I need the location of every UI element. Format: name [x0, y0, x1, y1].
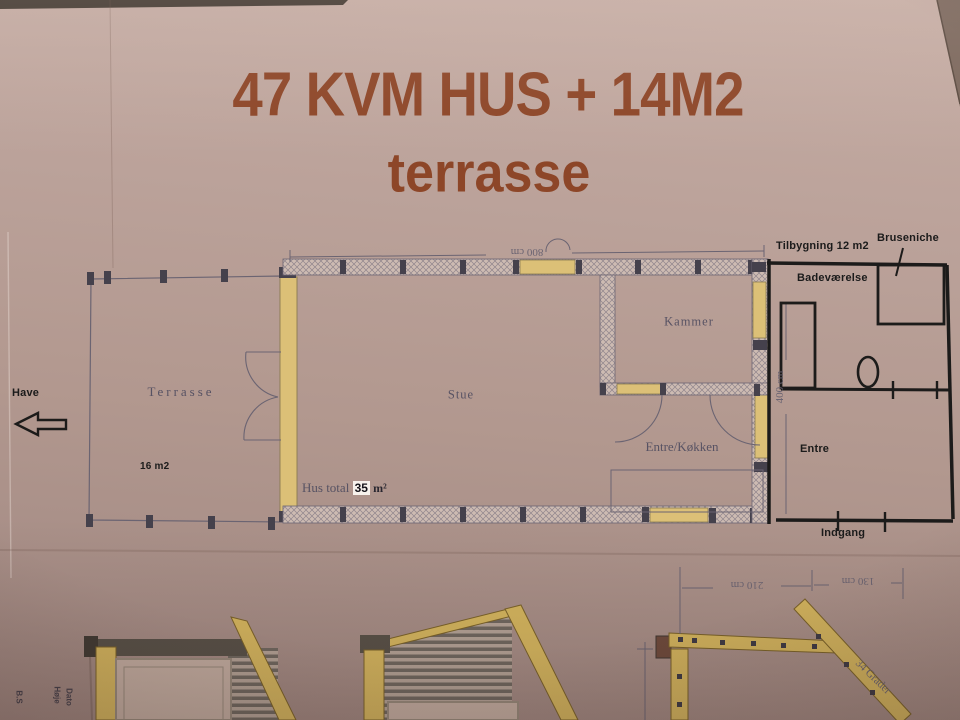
hus-total-value: 35	[353, 481, 370, 495]
addition-outline	[767, 248, 953, 532]
terrasse-room-label: Terrasse	[147, 384, 214, 400]
badevaerelse-label: Badeværelse	[797, 272, 868, 284]
dimension-400cm: 400 cm	[774, 371, 786, 404]
hus-total-prefix: Hus total	[302, 480, 349, 495]
margin-note-3: B.S	[15, 690, 24, 703]
dimension-130cm: 130 cm	[842, 575, 875, 587]
entre-label: Entre	[800, 443, 829, 455]
page-title-line1: 47 KVM HUS + 14M2	[232, 60, 743, 131]
dimension-800cm: 800 cm	[511, 246, 544, 258]
margin-note-2: Dato	[65, 688, 74, 706]
door-swing-arcs	[244, 352, 760, 445]
entre-koekken-room-label: Entre/Køkken	[646, 439, 719, 455]
hus-total-label: Hus total 35 m²	[302, 480, 387, 496]
margin-note-1: Høje	[53, 686, 62, 703]
page-title-line2: terrasse	[388, 140, 591, 205]
garden-direction-arrow-icon	[16, 413, 66, 435]
dimension-210cm: 210 cm	[731, 579, 764, 591]
stue-room-label: Stue	[448, 388, 474, 403]
elevation-drawing-middle	[360, 605, 578, 720]
tilbygning-label: Tilbygning 12 m2	[776, 240, 869, 252]
terrasse-area-label: 16 m2	[140, 461, 169, 472]
shower-niche	[878, 265, 944, 324]
dimension-lines	[290, 239, 786, 514]
indgang-label: Indgang	[821, 527, 865, 539]
floor-plan-photo: 47 KVM HUS + 14M2 terrasse Terrasse Stue…	[0, 0, 960, 720]
elevation-drawing-right	[637, 567, 911, 720]
kammer-room-label: Kammer	[664, 315, 714, 330]
elevation-drawing-left	[84, 617, 296, 720]
hus-total-unit: m²	[373, 481, 387, 495]
have-garden-label: Have	[12, 387, 39, 399]
toilet-symbol	[858, 357, 878, 387]
bruseniche-label: Bruseniche	[877, 232, 939, 244]
